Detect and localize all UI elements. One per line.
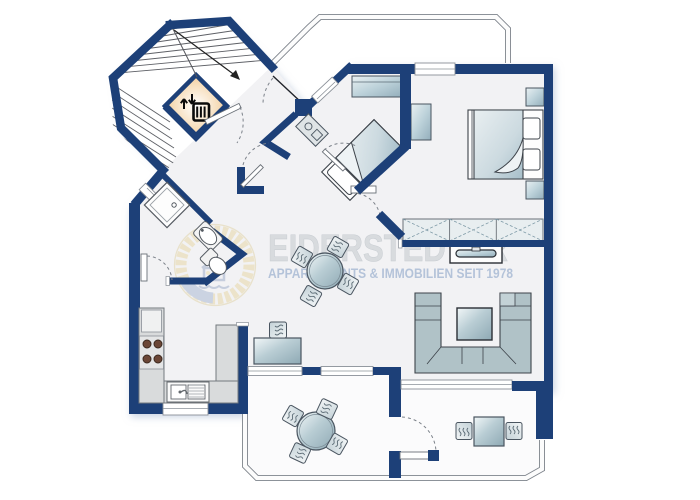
svg-text:APPARTEMENTS & IMMOBILIEN SEIT: APPARTEMENTS & IMMOBILIEN SEIT 1978: [268, 266, 513, 281]
